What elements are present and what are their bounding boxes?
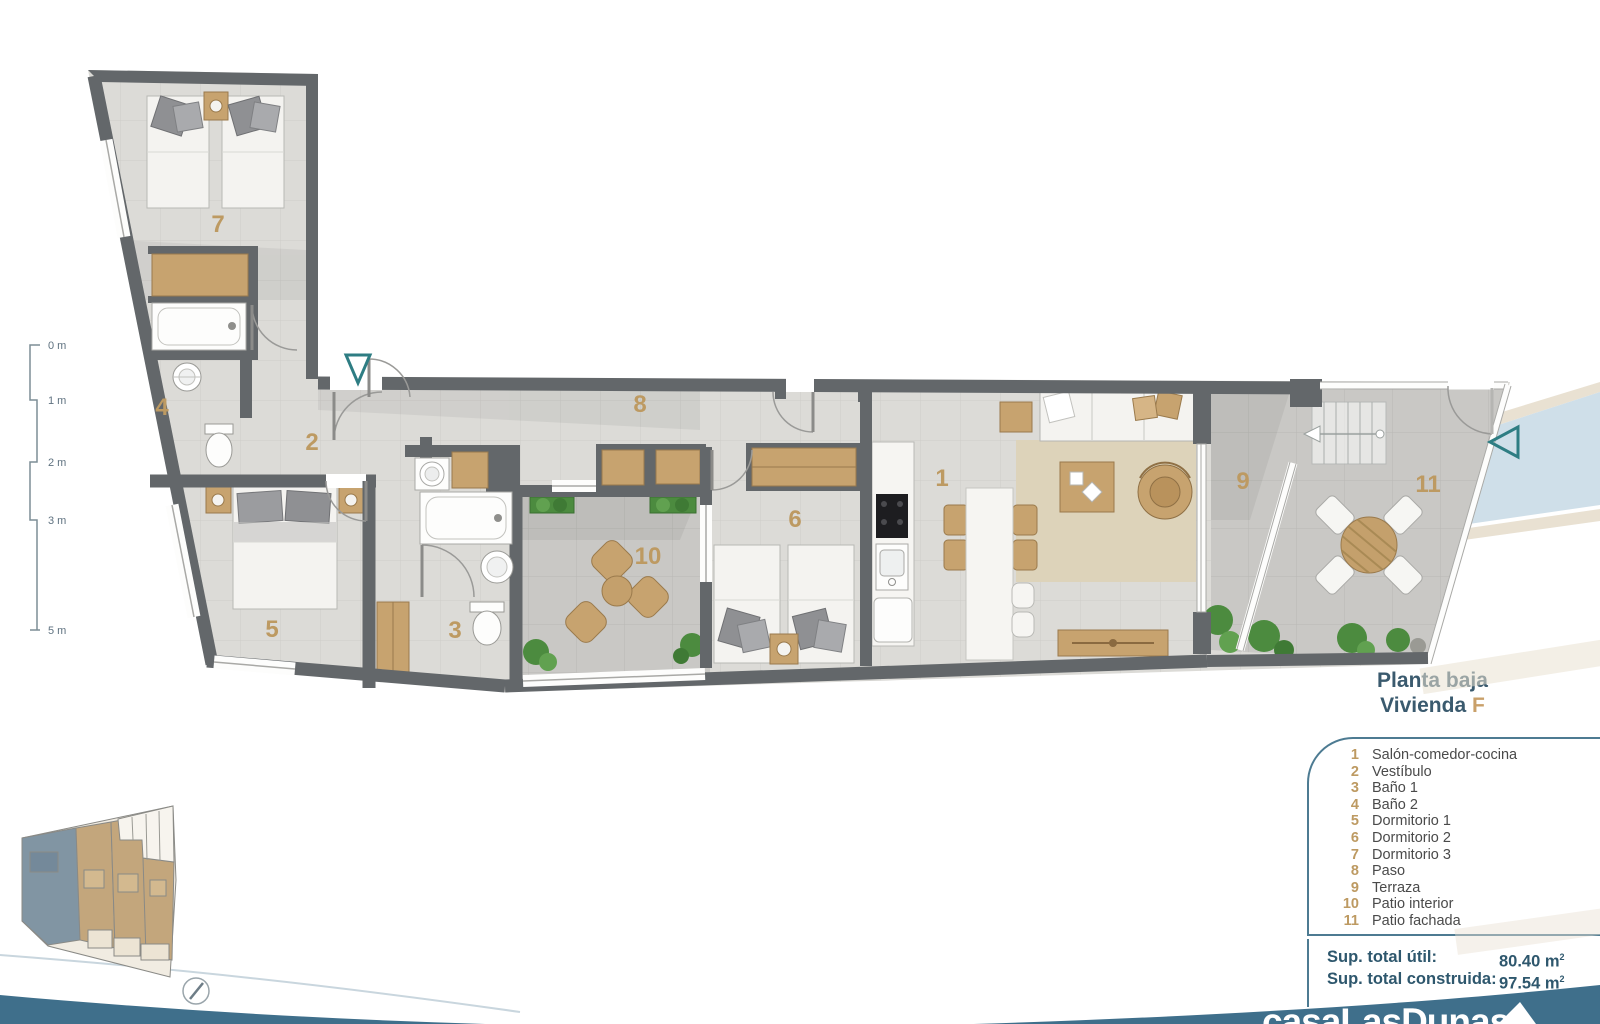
room-number-7: 7	[211, 211, 224, 238]
legend-item: 1Salón-comedor-cocina	[1309, 747, 1600, 764]
legend-panel: 1Salón-comedor-cocina 2Vestíbulo 3Baño 1…	[1307, 737, 1600, 936]
svg-text:0 m: 0 m	[48, 340, 66, 352]
legend-item: 8Paso	[1309, 863, 1600, 880]
legend-item: 10Patio interior	[1309, 896, 1600, 913]
total-built-label: Sup. total construida:	[1327, 970, 1497, 988]
legend-item: 4Baño 2	[1309, 797, 1600, 814]
svg-text:2 m: 2 m	[48, 457, 66, 469]
room-number-10: 10	[635, 543, 662, 570]
unit-letter: F	[1472, 694, 1485, 717]
compass-icon	[183, 978, 209, 1004]
room-number-2: 2	[305, 429, 318, 456]
legend-item: 6Dormitorio 2	[1309, 830, 1600, 847]
room-number-3: 3	[448, 617, 461, 644]
legend-item: 5Dormitorio 1	[1309, 813, 1600, 830]
legend-item: 7Dormitorio 3	[1309, 847, 1600, 864]
legend-border-extension	[1307, 939, 1309, 1007]
site-key-plan	[22, 806, 176, 977]
legend-item: 2Vestíbulo	[1309, 764, 1600, 781]
legend-item: 3Baño 1	[1309, 780, 1600, 797]
brand-logo: casaLasDunas	[1262, 1001, 1510, 1024]
room-number-11: 11	[1415, 471, 1440, 498]
svg-text:3 m: 3 m	[48, 515, 66, 527]
room-number-5: 5	[265, 616, 278, 643]
room-number-4: 4	[155, 394, 169, 421]
room-number-9: 9	[1236, 468, 1249, 495]
legend-item: 9Terraza	[1309, 880, 1600, 897]
brand-band: casaLasDunas	[0, 985, 1600, 1024]
svg-text:1 m: 1 m	[48, 395, 66, 407]
room-number-8: 8	[633, 391, 646, 418]
svg-text:5 m: 5 m	[48, 625, 66, 637]
room-number-1: 1	[935, 465, 948, 492]
total-built-value: 97.54 m	[1499, 975, 1560, 993]
unit-title: Vivienda F	[1305, 693, 1560, 718]
floorplan-page: 1 2 3 4 5 6 7 8 9 10 11 0 m 1 m 2 m 3 m …	[0, 0, 1600, 1024]
room-number-6: 6	[788, 506, 801, 533]
scale-bar: 0 m 1 m 2 m 3 m 5 m	[30, 340, 66, 637]
total-util-label: Sup. total útil:	[1327, 948, 1437, 966]
